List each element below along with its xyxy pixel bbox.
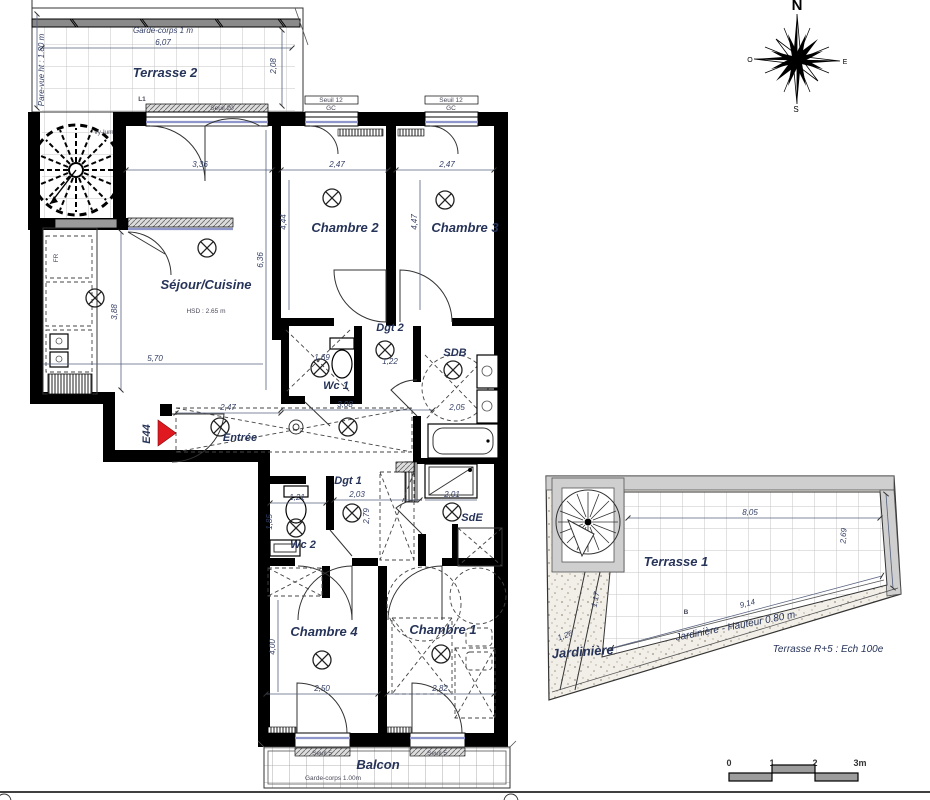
garde-corps-balcon-note: Garde-corps 1.00m bbox=[305, 775, 361, 782]
garde-corps-note: Garde-corps 1 m bbox=[133, 26, 193, 35]
dim-8-05: 8,05 bbox=[742, 508, 758, 517]
ceiling-light-icon bbox=[339, 418, 357, 436]
room-label-wc2: Wc 2 bbox=[290, 539, 316, 551]
room-label-dgt1: Dgt 1 bbox=[334, 475, 362, 487]
room-label-terrasse1: Terrasse 1 bbox=[644, 554, 709, 569]
dim-6-07: 6,07 bbox=[155, 38, 171, 47]
dim-6-36: 6,36 bbox=[256, 252, 265, 268]
dim-2-69: 2,69 bbox=[838, 527, 848, 545]
room-label-chambre2: Chambre 2 bbox=[311, 220, 379, 235]
room-label-entree: Entrée bbox=[223, 432, 257, 444]
compass-south-label: S bbox=[793, 105, 798, 114]
dim-1-85: 1,85 bbox=[265, 514, 274, 530]
room-label-balcon: Balcon bbox=[356, 757, 399, 772]
dim-1-69: 1,69 bbox=[314, 353, 330, 362]
kitchen: FR bbox=[43, 228, 97, 394]
window-seuil12-a: Seuil 12 GC bbox=[305, 96, 358, 154]
dim-1-22: 1,22 bbox=[382, 357, 398, 366]
ceiling-light-icon bbox=[343, 504, 361, 522]
entry-arrow-icon bbox=[158, 420, 176, 446]
compass-west-label: O bbox=[747, 57, 753, 64]
fridge-note: FR bbox=[53, 253, 60, 262]
room-note-hsd: HSD : 2.65 m bbox=[186, 308, 225, 315]
seuil5-note-b: Seuil 5 bbox=[427, 750, 447, 757]
dim-2-50: 2,50 bbox=[313, 684, 330, 693]
room-label-sdb: SDB bbox=[443, 347, 466, 359]
dim-2-47-c2: 2,47 bbox=[328, 160, 345, 169]
dim-2-82: 2,82 bbox=[431, 684, 448, 693]
room-label-chambre3: Chambre 3 bbox=[431, 220, 499, 235]
scale-bar: 0 1 2 3m bbox=[726, 758, 866, 781]
dim-3-36: 3,36 bbox=[192, 160, 208, 169]
dim-2-47-c3: 2,47 bbox=[438, 160, 455, 169]
seuil12-note-a: Seuil 12 bbox=[319, 97, 343, 104]
ceiling-light-icon bbox=[432, 645, 450, 663]
terrasse-1: 8,05 9,14 2,69 1,26 1,17 B Terrasse 1 Ja… bbox=[546, 476, 901, 700]
balcon: Seuil 5 Seuil 5 Balcon Garde-corps 1.00m bbox=[258, 741, 516, 788]
l1-note: L1 bbox=[138, 96, 146, 103]
dim-2-79: 2,79 bbox=[362, 508, 371, 525]
dim-2-05: 2,05 bbox=[448, 403, 465, 412]
room-label-chambre4: Chambre 4 bbox=[290, 624, 358, 639]
dim-2-01: 2,01 bbox=[443, 490, 460, 499]
radiator bbox=[398, 129, 424, 136]
dim-4-47: 4,47 bbox=[410, 214, 419, 230]
dim-1-21: 1,21 bbox=[289, 493, 305, 502]
dim-3-08: 3,08 bbox=[337, 400, 353, 409]
seuil20-note: Seuil 20 bbox=[210, 105, 234, 112]
e44-label: E44 bbox=[141, 424, 153, 444]
room-label-dgt2: Dgt 2 bbox=[376, 322, 404, 334]
compass-points bbox=[754, 14, 840, 104]
compass-north-label: N bbox=[792, 0, 803, 14]
ceiling-light-icon bbox=[436, 191, 454, 209]
floor-plan: Garde-corps 1 m 6,07 2,08 Pare-vue ht : … bbox=[0, 0, 930, 800]
ceiling-light-icon bbox=[198, 239, 216, 257]
ceiling-light-icon bbox=[444, 361, 462, 379]
gc-note-b: GC bbox=[446, 105, 456, 112]
compass-east-label: E bbox=[843, 59, 848, 66]
scale-3m: 3m bbox=[853, 758, 866, 768]
ceiling-light-icon bbox=[313, 651, 331, 669]
seuil12-note-b: Seuil 12 bbox=[439, 97, 463, 104]
b-marker: B bbox=[684, 609, 689, 616]
windows: Seuil 20 Seuil 12 GC Seuil 12 GC bbox=[112, 96, 478, 747]
page-bottom-rule bbox=[0, 792, 930, 800]
vy-lum-note: vy-lum bbox=[94, 129, 113, 136]
entry-marker-e44: E44 bbox=[141, 420, 176, 446]
radiator bbox=[338, 129, 383, 136]
dim-2-08: 2,08 bbox=[269, 58, 278, 75]
terrasse-r5-note: Terrasse R+5 : Ech 100e bbox=[773, 644, 884, 655]
room-label-wc1: Wc 1 bbox=[323, 380, 349, 392]
dim-4-44: 4,44 bbox=[279, 214, 288, 230]
dim-5-70: 5,70 bbox=[147, 354, 163, 363]
ceiling-light-icon bbox=[443, 503, 461, 521]
room-label-sejour: Séjour/Cuisine bbox=[160, 277, 251, 292]
dim-4-00: 4,00 bbox=[268, 639, 277, 655]
ceiling-light-icon bbox=[323, 189, 341, 207]
c1-furniture bbox=[387, 567, 506, 718]
window-terrace-sill bbox=[128, 218, 233, 227]
dim-3-88: 3,88 bbox=[110, 304, 119, 320]
seuil5-note-a: Seuil 5 bbox=[312, 750, 332, 757]
room-label-sde: SdE bbox=[461, 512, 483, 524]
window-seuil12-b: Seuil 12 GC bbox=[425, 96, 478, 154]
room-label-chambre1: Chambre 1 bbox=[409, 622, 476, 637]
dim-2-03: 2,03 bbox=[348, 490, 365, 499]
compass-rose: N O E S bbox=[747, 0, 847, 114]
scale-0: 0 bbox=[726, 758, 731, 768]
window-seuil20: Seuil 20 bbox=[146, 104, 268, 181]
dim-2-47-ent: 2,47 bbox=[219, 403, 236, 412]
ceiling-light-icon bbox=[86, 289, 104, 307]
room-label-terrasse2: Terrasse 2 bbox=[133, 65, 198, 80]
pare-vue-note: Pare-vue ht : 1.80 m bbox=[37, 33, 46, 106]
gc-note-a: GC bbox=[326, 105, 336, 112]
